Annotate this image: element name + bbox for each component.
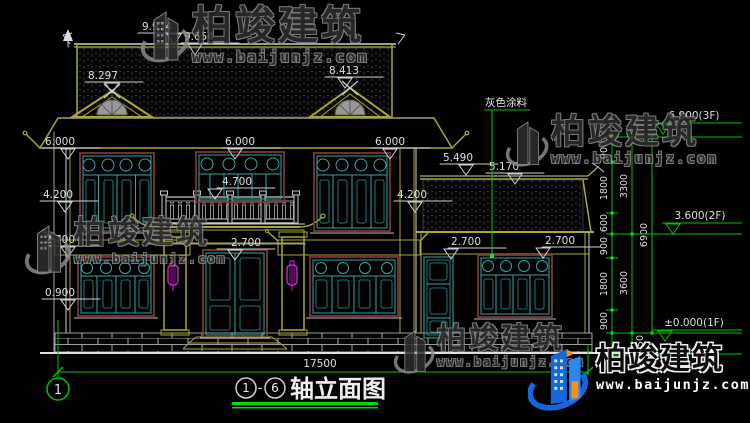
overall-width-label: 17500 <box>303 358 336 370</box>
elev-label: 5.490 <box>443 152 473 164</box>
stone-plinth <box>55 333 592 353</box>
chain-seg: 1800 <box>599 272 610 296</box>
axis-bubble-label: 1 <box>54 383 62 398</box>
chain-subtotal: 3600 <box>619 271 630 295</box>
drawing-title: 1 - 6 轴立面图 <box>232 375 386 409</box>
elev-label: 2.700 <box>231 237 261 249</box>
elev-label: 9.654 <box>184 31 214 43</box>
window-2f-right <box>314 153 390 231</box>
ridge-end-ornament-right <box>396 33 405 44</box>
title-axis-end: 6 <box>271 381 279 395</box>
annex-door <box>424 257 453 338</box>
elev-label: 4.200 <box>43 189 73 201</box>
elev-label: 2.700 <box>545 235 575 247</box>
elev-label: 5.170 <box>489 161 519 173</box>
entrance-door <box>200 250 270 338</box>
level-1f: ±0.000(1F) <box>608 317 742 341</box>
paint-leader: 灰色涂料 <box>484 96 530 258</box>
elev-2700-left: 2.700 <box>42 234 100 257</box>
chain-seg: 900 <box>599 141 610 159</box>
elev-label: 6.000 <box>45 136 75 148</box>
elev-label: 6.000 <box>225 136 255 148</box>
elev-label: 4.700 <box>222 176 252 188</box>
elev-4200-left: 4.200 <box>40 189 98 212</box>
cad-elevation-screenshot: 9.974 9.654 8.297 8.413 6.000 6.000 6.00… <box>0 0 750 423</box>
brand-logo: 柏竣建筑 www.baijunjz.com <box>528 344 750 416</box>
window-1f-right <box>310 257 398 316</box>
main-roof <box>23 33 469 148</box>
title-axis-start: 1 <box>242 381 250 395</box>
elev-label: 9.974 <box>142 21 172 33</box>
level-label: ±0.000(1F) <box>664 317 724 329</box>
level-2f: 3.600(2F) <box>608 210 742 234</box>
brand-logo-icon <box>528 344 592 416</box>
window-1f-left <box>78 257 154 316</box>
elev-0900: 0.900 <box>42 287 100 310</box>
elev-label: 0.900 <box>45 287 75 299</box>
annex-window <box>478 255 552 317</box>
lantern-left <box>168 261 178 291</box>
chain-seg: 900 <box>599 312 610 330</box>
chain-subtotal: 3300 <box>619 174 630 198</box>
chain-seg: 900 <box>599 237 610 255</box>
elev-label: 2.700 <box>451 236 481 248</box>
brand-logo-url: www.baijunjz.com <box>596 377 750 393</box>
chain-seg: 1800 <box>599 176 610 200</box>
elev-label: 8.297 <box>88 70 118 82</box>
eave-curl-right <box>452 134 466 148</box>
elev-label: 4.200 <box>397 189 427 201</box>
title-name: 轴立面图 <box>290 375 386 403</box>
level-label: 3.600(2F) <box>675 210 726 222</box>
elev-6000-mid: 6.000 <box>222 136 280 159</box>
brand-logo-text: 柏竣建筑 <box>596 344 750 376</box>
level-label: 6.900(3F) <box>669 110 720 122</box>
level-3f: 6.900(3F) <box>608 110 742 137</box>
balcony-railing <box>160 191 300 223</box>
title-dash: - <box>258 381 263 396</box>
elev-label: 8.413 <box>329 65 359 77</box>
right-dimension-chain: 900 1800 600 900 1800 900 3300 3600 6900… <box>599 110 742 365</box>
eave-curl-left <box>26 134 40 148</box>
chain-total: 6900 <box>639 223 650 247</box>
annex-roof-curl <box>588 167 598 176</box>
window-2f-left <box>80 153 154 231</box>
elev-label: 2.700 <box>45 234 75 246</box>
lantern-right <box>287 261 297 291</box>
elev-label: 6.000 <box>375 136 405 148</box>
chain-seg: 600 <box>599 214 610 232</box>
paint-label: 灰色涂料 <box>485 96 527 109</box>
elev-2700-annex-right: 2.700 <box>536 235 600 258</box>
